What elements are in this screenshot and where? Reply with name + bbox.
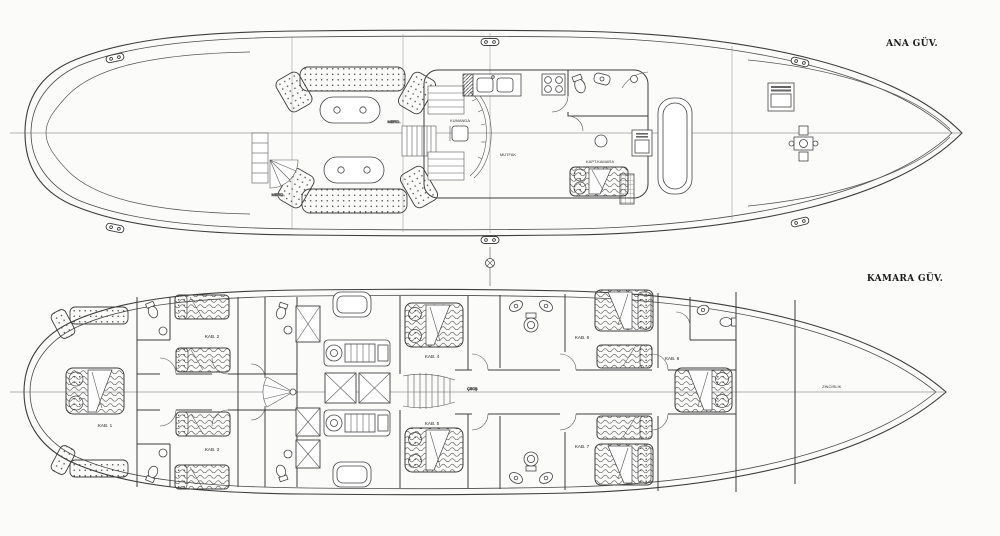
galley: MUTFAK — [463, 74, 565, 157]
companionway-stairs: MERD. — [388, 119, 436, 156]
sink-icon — [159, 449, 167, 457]
bed — [597, 416, 652, 439]
cabin-2-twin-top: KAB. 2 — [137, 295, 230, 372]
engine-starboard — [324, 410, 390, 436]
bed — [675, 368, 732, 412]
main-companionway-lower: ÇIKIŞ — [403, 373, 478, 409]
forward-bathroom-top — [508, 298, 555, 332]
cabin-5-label: KAB. 5 — [425, 421, 440, 426]
cabin-1-label: KAB. 1 — [98, 423, 113, 428]
faucet — [492, 76, 495, 79]
bed — [175, 465, 229, 489]
bed — [175, 295, 229, 319]
chain-locker-label: ZİNCİRLİK — [822, 384, 842, 389]
main-deck-title: ANA GÜV. — [885, 36, 938, 49]
bed — [176, 412, 230, 436]
sink-icon — [284, 450, 292, 458]
cabin-deck-hull — [10, 289, 946, 494]
cabin-3-twin-bottom: KAB. 3 — [137, 412, 230, 489]
cabin-6-top: KAB. 6 — [575, 290, 653, 368]
deck-plans-drawing: ANA GÜV. — [0, 0, 1000, 536]
small-deck-box — [632, 130, 652, 156]
sink-icon — [284, 326, 292, 334]
anchor-windlass — [789, 126, 818, 161]
stove — [542, 74, 565, 95]
cabin-6-label: KAB. 6 — [575, 335, 590, 340]
captain-bed — [570, 167, 628, 196]
galley-label: MUTFAK — [500, 152, 517, 157]
main-deck-plan: ANA GÜV. — [10, 30, 962, 243]
shower-head-icon — [631, 76, 638, 83]
helm-label: KUMANDA — [450, 118, 470, 123]
mid-stairs-label: MERD. — [388, 119, 401, 124]
cabin-2-label: KAB. 2 — [205, 334, 220, 339]
deckhouse-wc — [552, 70, 648, 116]
cabin-4-double-top: KAB. 4 — [405, 303, 463, 359]
cabin-4-label: KAB. 4 — [425, 354, 440, 359]
bed — [595, 444, 653, 485]
bed — [405, 303, 463, 347]
deckhouse: KUMANDA MUTFAK — [424, 70, 648, 198]
main-deck-hull — [10, 30, 962, 236]
fore-deck-box — [768, 83, 794, 111]
bed — [595, 290, 653, 331]
lower-spiral-staircase — [263, 377, 296, 407]
cabin-8-master-forward: KAB. 8 — [665, 297, 736, 412]
master-aft-bed — [66, 368, 124, 414]
cabin-7-label: KAB. 7 — [575, 444, 590, 449]
exit-label: ÇIKIŞ — [467, 386, 478, 391]
cabin-deck-plan: KAMARA GÜV. — [10, 271, 946, 495]
aft-table-top — [320, 97, 380, 123]
bed — [597, 345, 652, 368]
engine-port — [324, 340, 390, 366]
captain-cabin: KAPT.KAMARA — [568, 116, 628, 196]
cabin-8-label: KAB. 8 — [665, 356, 680, 361]
toilet-icon — [720, 318, 732, 327]
cabin-3-label: KAB. 3 — [205, 447, 220, 452]
aft-stairs-label: MERD. — [272, 192, 285, 197]
cabin-7-bottom: KAB. 7 — [575, 416, 653, 485]
helm-seat: KUMANDA — [450, 118, 470, 141]
cabin-5-double-bottom: KAB. 5 — [405, 421, 463, 472]
captain-cabin-label: KAPT.KAMARA — [586, 159, 614, 164]
bed — [176, 348, 230, 372]
boat-plan-sheet: ANA GÜV. — [0, 0, 1000, 536]
deck-grate — [620, 174, 634, 204]
forward-bathroom-bottom — [508, 452, 555, 486]
mast-symbol — [486, 247, 495, 286]
aft-table-bottom — [324, 157, 384, 183]
bed — [405, 428, 463, 472]
sink-icon — [159, 327, 167, 335]
captain-table — [595, 135, 607, 147]
engine-room — [296, 292, 390, 487]
helm-console — [470, 90, 491, 178]
cabin-deck-title: KAMARA GÜV. — [867, 271, 943, 284]
foredeck — [620, 83, 818, 204]
